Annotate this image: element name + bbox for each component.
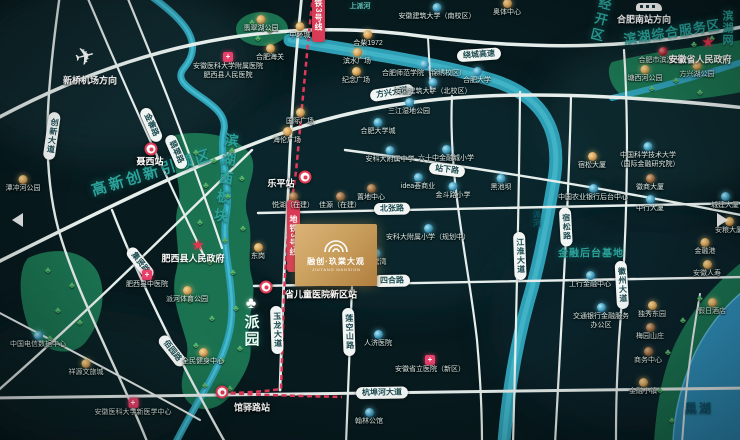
poi-label: 肥西县中医院: [126, 281, 168, 289]
tree-icon: ♣: [673, 75, 679, 85]
poi-dot-icon: [367, 184, 376, 193]
poi-label: 奥体中心: [493, 9, 521, 17]
poi-dot-icon: [296, 22, 305, 31]
poi-marker: 人济医院: [364, 330, 392, 348]
poi-dot-icon: [424, 224, 433, 233]
poi-label: 金融港: [695, 248, 716, 256]
poi-marker: 东岗: [251, 243, 265, 261]
poi-label: 安徽医科大学新医学中心: [95, 409, 172, 417]
poi-marker: 国际广场: [286, 108, 314, 126]
poi-dot-icon: [296, 108, 305, 117]
poi-dot-icon: [721, 192, 730, 201]
tree-icon: ♣: [665, 347, 671, 357]
tree-icon: ♣: [209, 313, 215, 323]
poi-marker: 奥体中心: [493, 0, 521, 17]
poi-dot-icon: [497, 174, 506, 183]
tree-icon: ♣: [193, 147, 199, 157]
poi-marker: 安徽建筑大学（南校区）: [399, 3, 476, 21]
metro-station-label: 馆驿路站: [234, 401, 270, 414]
tree-icon: ♣: [237, 343, 243, 353]
tree-icon: ♣: [680, 315, 686, 325]
poi-dot-icon: [646, 195, 655, 204]
poi-dot-icon: [266, 44, 275, 53]
poi-dot-icon: [19, 175, 28, 184]
poi-marker: 安科大附属中学: [366, 146, 415, 164]
tree-icon: ♣: [45, 265, 51, 275]
poi-marker: 海伦广场: [273, 127, 301, 145]
poi-marker: 安徽建筑大学（北校区）: [395, 78, 472, 96]
carousel-next-arrow[interactable]: [717, 213, 728, 227]
poi-dot-icon: [597, 303, 606, 312]
poi-marker: 滨水广场: [343, 48, 371, 66]
poi-label: idea荟商业: [401, 183, 435, 191]
poi-dot-icon: [639, 378, 648, 387]
district-zone-label: 巢湖: [685, 400, 713, 417]
poi-marker: 潭冲河公园: [6, 175, 41, 193]
poi-marker: 全民健身中心: [182, 348, 224, 366]
south-station-direction-label: 合肥南站方向: [617, 13, 671, 26]
poi-dot-icon: [503, 0, 512, 8]
poi-dot-icon: [586, 271, 595, 280]
tree-icon: ♣: [649, 83, 655, 93]
poi-marker: 合肥大学城: [361, 118, 396, 136]
poi-marker: 置地中心: [357, 184, 385, 202]
province-government-label: 安徽省人民政府: [668, 53, 731, 66]
district-zone-label: 滨湖西板块: [209, 132, 242, 229]
poi-label: 纪念广场: [342, 77, 370, 85]
poi-marker: 六十中金融城小学: [418, 145, 474, 163]
poi-label: 派河体育公园: [166, 296, 208, 304]
poi-label: 假日酒店: [698, 308, 726, 316]
poi-marker: 金融港: [695, 238, 716, 256]
tree-icon: ♣: [203, 180, 209, 190]
poi-label: 梅园山庄: [636, 333, 664, 341]
tree-icon: ♣: [229, 145, 235, 155]
poi-label: 海伦广场: [273, 137, 301, 145]
poi-dot-icon: [433, 3, 442, 12]
poi-label: 悦湖（在建）: [272, 202, 314, 210]
tree-icon: ♣: [233, 303, 239, 313]
poi-marker: 三江湿地公园: [388, 98, 430, 116]
poi-dot-icon: [644, 347, 653, 356]
carousel-prev-arrow[interactable]: [12, 213, 23, 227]
poi-dot-icon: [34, 331, 43, 340]
poi-label: 安粮大厦: [715, 227, 740, 235]
poi-marker: 黑池坝: [491, 174, 512, 192]
poi-label: 全民健身中心: [182, 358, 224, 366]
poi-dot-icon: [659, 47, 668, 56]
poi-dot-icon: +: [128, 398, 138, 408]
poi-label: 宿松大厦: [578, 162, 606, 170]
poi-marker: idea荟商业: [401, 173, 435, 191]
poi-label: 金融小镇: [629, 388, 657, 396]
logo-arcs-icon: [321, 238, 351, 254]
poi-label: 三江湿地公园: [388, 108, 430, 116]
poi-marker: 假日酒店: [698, 298, 726, 316]
tree-icon: ♣: [697, 87, 703, 97]
poi-label: 安徽建筑大学（南校区）: [399, 13, 476, 21]
tree-icon: ♣: [222, 235, 228, 245]
poi-label: 商务中心: [634, 357, 662, 365]
road-name-pill: 宿松路: [559, 207, 573, 247]
poi-label: 中国农业银行后台中心: [558, 194, 628, 202]
poi-label: 安科大附属中学: [366, 156, 415, 164]
poi-dot-icon: [442, 145, 451, 154]
airport-direction-label: 新桥机场方向: [63, 74, 117, 87]
tree-icon: ♣: [197, 217, 203, 227]
poi-marker: 合柴1972: [353, 30, 383, 48]
poi-label: 黑池坝: [491, 184, 512, 192]
tree-icon: ♣: [691, 39, 697, 49]
poi-label: 合肥大学城: [361, 128, 396, 136]
poi-label: 工行金融中心: [569, 281, 611, 289]
road-name-pill: 北张路: [374, 202, 410, 215]
poi-label: 中环城: [290, 32, 311, 40]
poi-dot-icon: [429, 78, 438, 87]
poi-marker: 交通银行金融服务 办公区: [573, 303, 629, 331]
poi-label: 城建大厦: [711, 202, 739, 210]
labels-layer: 高新创新引领区滨湖西板块经开区滨湖综合服务区金融后台基地滨湖网派园巢湖派河上派河…: [0, 0, 740, 440]
tree-icon: ♣: [225, 191, 231, 201]
poi-dot-icon: [254, 243, 263, 252]
tree-icon: ♣: [239, 173, 245, 183]
poi-dot-icon: [646, 323, 655, 332]
tree-icon: ♣: [202, 380, 208, 390]
poi-dot-icon: [413, 173, 422, 182]
poi-label: 方兴湖公园: [680, 71, 715, 79]
road-name-pill: 杭埠河大道: [356, 386, 408, 399]
poi-dot-icon: [199, 348, 208, 357]
poi-dot-icon: [644, 142, 653, 151]
poi-marker: 安科大附属小学（规划中）: [386, 224, 470, 242]
metro-station-label: 省儿童医院新区站: [285, 288, 357, 301]
poi-dot-icon: [353, 48, 362, 57]
poi-marker: 工行金融中心: [569, 271, 611, 289]
poi-label: 置地中心: [357, 194, 385, 202]
poi-label: 国际广场: [286, 118, 314, 126]
poi-marker: 金融小镇: [629, 378, 657, 396]
poi-dot-icon: +: [142, 270, 152, 280]
poi-label: 翡翠湖公园: [244, 25, 279, 33]
poi-label: 佳源（在建）: [319, 202, 361, 210]
poi-marker: 翡翠湖公园: [244, 15, 279, 33]
poi-dot-icon: [701, 238, 710, 247]
poi-dot-icon: [405, 98, 414, 107]
poi-label: 金斗路小学: [436, 192, 471, 200]
poi-marker: 纪念广场: [342, 67, 370, 85]
poi-label: 人济医院: [364, 340, 392, 348]
metro-station-label: 聂西站: [136, 155, 163, 168]
poi-marker: 悦湖（在建）: [272, 192, 314, 210]
poi-dot-icon: [589, 184, 598, 193]
poi-marker: + 安徽医科大学附属医院 肥西县人民医院: [193, 52, 263, 81]
metro-line-ribbon: 地铁3号线: [312, 0, 325, 42]
poi-dot-icon: [386, 146, 395, 155]
poi-dot-icon: [708, 298, 717, 307]
poi-dot-icon: [703, 260, 712, 269]
poi-marker: 翰林公馆: [355, 408, 383, 426]
poi-label: 塘西河公园: [628, 75, 663, 83]
district-zone-label: 滨湖网: [719, 10, 735, 46]
poi-marker: + 安徽省立医院（新区）: [395, 355, 465, 374]
poi-label: 祥源文旅城: [69, 369, 104, 377]
poi-label: 徽商大厦: [636, 184, 664, 192]
poi-label-line2: （国际金融研究院）: [617, 161, 680, 169]
poi-label-line2: 肥西县人民医院: [204, 72, 253, 80]
poi-label: 六十中金融城小学: [418, 155, 474, 163]
poi-marker: 梅园山庄: [636, 323, 664, 341]
poi-label: 翰林公馆: [355, 418, 383, 426]
poi-dot-icon: [648, 301, 657, 310]
poi-dot-icon: [420, 60, 429, 69]
poi-label: 合肥大学: [463, 77, 491, 85]
poi-dot-icon: [289, 192, 298, 201]
tree-icon: ♣: [77, 317, 83, 327]
poi-dot-icon: [352, 67, 361, 76]
poi-dot-icon: [363, 30, 372, 39]
poi-dot-icon: [336, 192, 345, 201]
poi-dot-icon: [646, 174, 655, 183]
poi-marker: 合肥师范学院（锦绣校区）: [382, 60, 466, 78]
poi-marker: 佳源（在建）: [319, 192, 361, 210]
poi-dot-icon: [183, 286, 192, 295]
metro-station-icon: [216, 386, 229, 399]
district-zone-label: 金融后台基地: [558, 245, 624, 260]
tree-icon: ♣: [55, 305, 61, 315]
poi-dot-icon: [588, 152, 597, 161]
project-logo-badge: 融创·玖棠大观 JIUTANG MANSION: [295, 224, 377, 286]
poi-marker: + 安徽医科大学新医学中心: [95, 398, 172, 417]
district-zone-label: 派园: [241, 314, 262, 348]
road-name-pill: 莲空山路: [342, 308, 356, 356]
road-name-pill: 徽州大道: [615, 261, 630, 310]
poi-dot-icon: +: [425, 355, 435, 365]
county-government-label: 肥西县人民政府: [161, 252, 224, 265]
poi-dot-icon: [473, 67, 482, 76]
poi-label: 东岗: [251, 253, 265, 261]
poi-dot-icon: [641, 65, 650, 74]
poi-marker: 中国电信数据中心: [10, 331, 66, 349]
project-name: 融创·玖棠大观: [307, 256, 365, 267]
poi-marker: 中国农业银行后台中心: [558, 184, 628, 202]
poi-dot-icon: [257, 15, 266, 24]
poi-dot-icon: [374, 118, 383, 127]
poi-marker: 安徽人寿: [693, 260, 721, 278]
poi-marker: 宿松大厦: [578, 152, 606, 170]
poi-label: 中国科学技术大学: [620, 152, 676, 160]
poi-label: 滨水广场: [343, 58, 371, 66]
poi-marker: 中行大厦: [636, 195, 664, 213]
train-icon: [636, 3, 662, 11]
tree-icon: ♣: [69, 280, 75, 290]
poi-marker: 祥源文旅城: [69, 359, 104, 377]
poi-marker: 金斗路小学: [436, 182, 471, 200]
project-name-latin: JIUTANG MANSION: [312, 267, 361, 272]
poi-dot-icon: [82, 359, 91, 368]
poi-dot-icon: [365, 408, 374, 417]
tree-icon: ♣: [211, 155, 217, 165]
poi-label: 安徽省立医院（新区）: [395, 366, 465, 374]
road-name-pill: 创新大道: [43, 111, 62, 160]
poi-marker: 城建大厦: [711, 192, 739, 210]
poi-marker: 中环城: [290, 22, 311, 40]
poi-label: 中国电信数据中心: [10, 341, 66, 349]
poi-label: 潭冲河公园: [6, 185, 41, 193]
poi-marker: 中国科学技术大学 （国际金融研究院）: [617, 142, 680, 170]
poi-marker: 商务中心: [634, 347, 662, 365]
poi-label: 安徽建筑大学（北校区）: [395, 88, 472, 96]
poi-dot-icon: [283, 127, 292, 136]
province-government-star-icon: ★: [701, 33, 714, 51]
district-zone-label: 派河: [532, 210, 543, 228]
tree-icon: ♣: [669, 415, 675, 425]
poi-label-line2: 办公区: [591, 322, 612, 330]
tree-icon: ♣: [657, 385, 663, 395]
poi-marker: 独秀东园: [638, 301, 666, 319]
park-tree-icon: ♣: [246, 295, 257, 313]
road-name-pill: 玉龙大道: [270, 306, 284, 354]
poi-marker: 徽商大厦: [636, 174, 664, 192]
location-map: 高新创新引领区滨湖西板块经开区滨湖综合服务区金融后台基地滨湖网派园巢湖派河上派河…: [0, 0, 740, 440]
district-zone-label: 经开区: [585, 0, 615, 46]
poi-dot-icon: [449, 182, 458, 191]
tree-icon: ♣: [255, 33, 261, 43]
poi-marker: 合肥大学: [463, 67, 491, 85]
poi-label: 安徽人寿: [693, 270, 721, 278]
metro-station-icon: [260, 281, 273, 294]
poi-marker: 派河体育公园: [166, 286, 208, 304]
poi-label: 交通银行金融服务: [573, 313, 629, 321]
tree-icon: ♣: [230, 267, 236, 277]
road-name-pill: 四合路: [374, 274, 410, 287]
poi-label: 安徽医科大学附属医院: [193, 63, 263, 71]
poi-marker: 塘西河公园: [628, 65, 663, 83]
district-zone-label: 上派河: [350, 1, 371, 11]
metro-station-icon: [299, 171, 312, 184]
poi-label: 中行大厦: [636, 205, 664, 213]
metro-station-label: 乐平站: [267, 177, 294, 190]
poi-dot-icon: [374, 330, 383, 339]
road-name-pill: 江淮大道: [513, 232, 527, 280]
poi-marker: + 肥西县中医院: [126, 270, 168, 289]
poi-label: 安科大附属小学（规划中）: [386, 234, 470, 242]
road-name-pill: 金寨路: [138, 106, 164, 144]
poi-dot-icon: +: [223, 52, 233, 62]
poi-label: 独秀东园: [638, 311, 666, 319]
tree-icon: ♣: [240, 223, 246, 233]
